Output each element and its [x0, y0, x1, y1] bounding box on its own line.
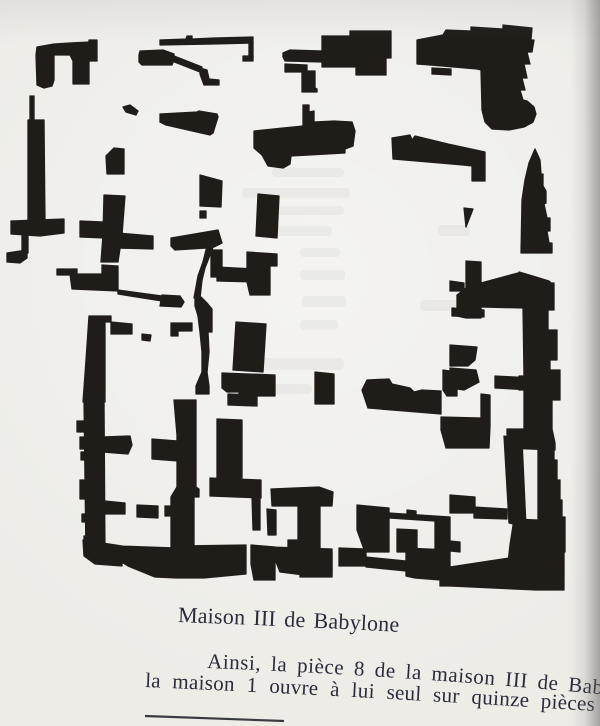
svg-text:Maison III de Babylone: Maison III de Babylone — [178, 602, 400, 637]
